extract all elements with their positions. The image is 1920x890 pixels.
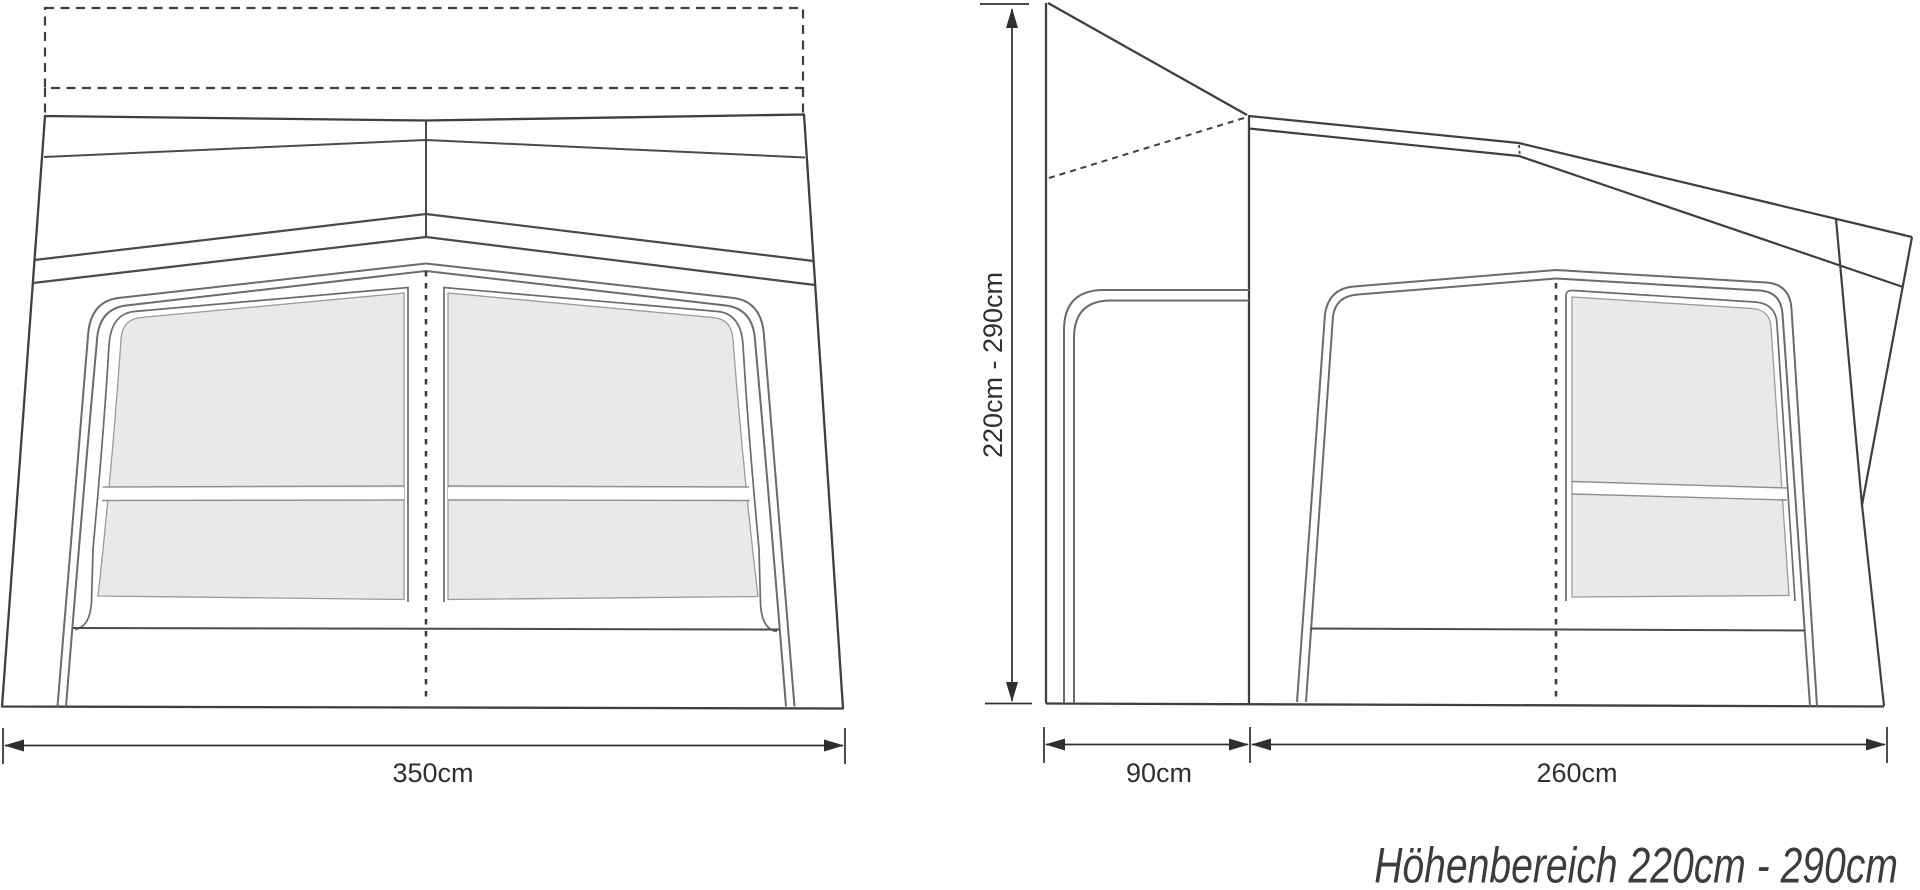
svg-text:260cm: 260cm bbox=[1536, 758, 1617, 788]
svg-text:350cm: 350cm bbox=[392, 758, 473, 788]
svg-text:Höhenbereich 220cm - 290cm: Höhenbereich 220cm - 290cm bbox=[1374, 837, 1898, 890]
svg-text:90cm: 90cm bbox=[1126, 758, 1192, 788]
svg-text:220cm - 290cm: 220cm - 290cm bbox=[978, 272, 1008, 458]
